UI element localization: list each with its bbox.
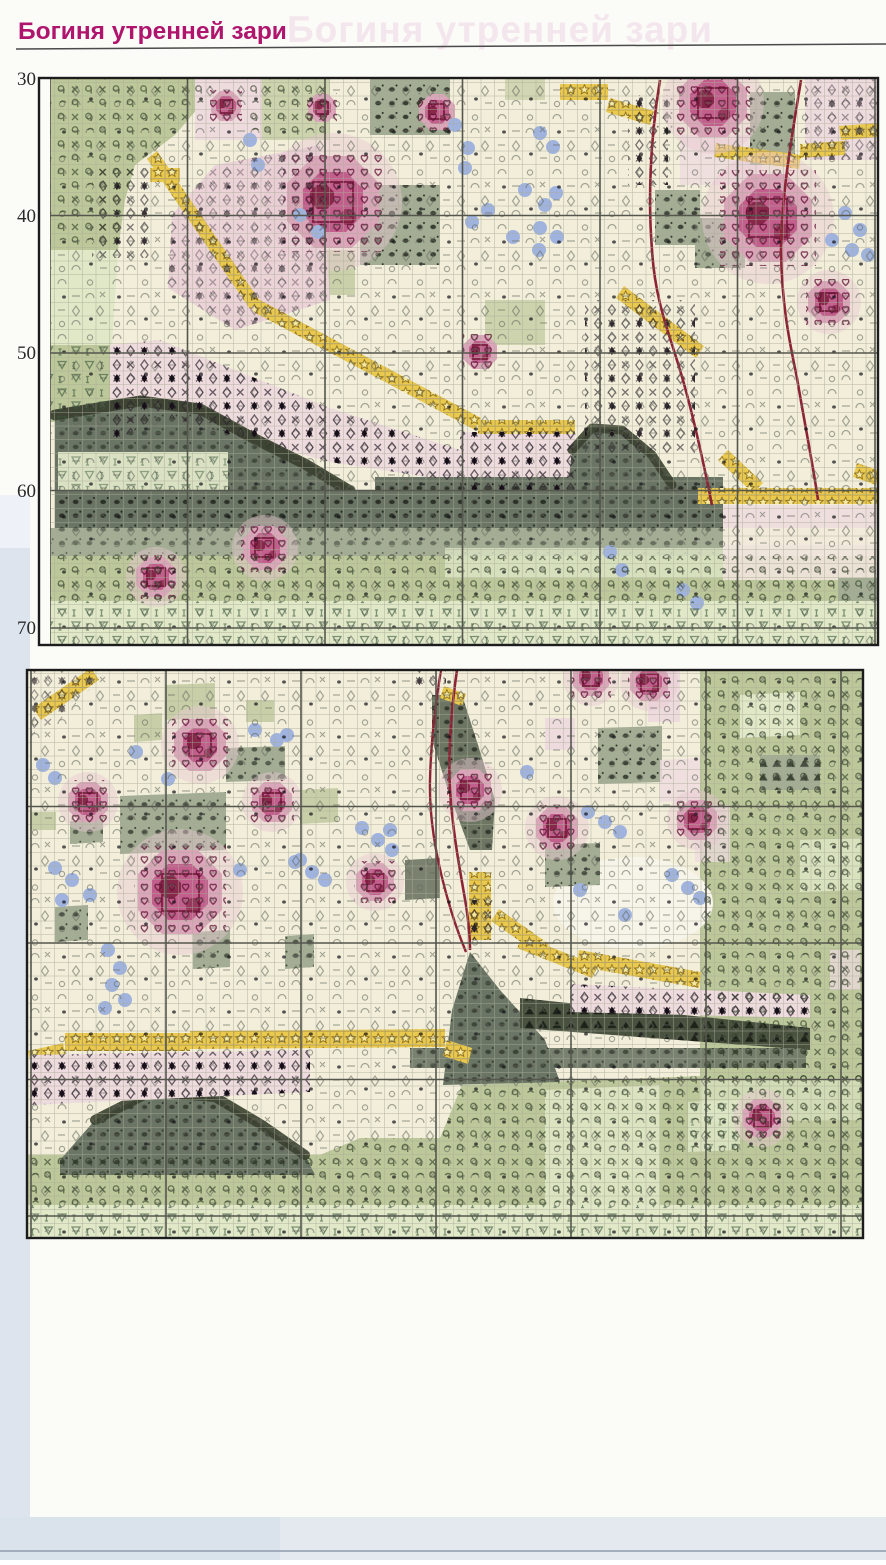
svg-text:Богиня утренней зари: Богиня утренней зари	[287, 9, 713, 50]
svg-text:Богиня утренней зари: Богиня утренней зари	[18, 18, 287, 45]
svg-text:50: 50	[17, 343, 36, 364]
svg-text:70: 70	[17, 618, 36, 639]
svg-text:40: 40	[17, 206, 36, 227]
svg-text:60: 60	[17, 481, 36, 502]
svg-text:30: 30	[17, 69, 36, 90]
